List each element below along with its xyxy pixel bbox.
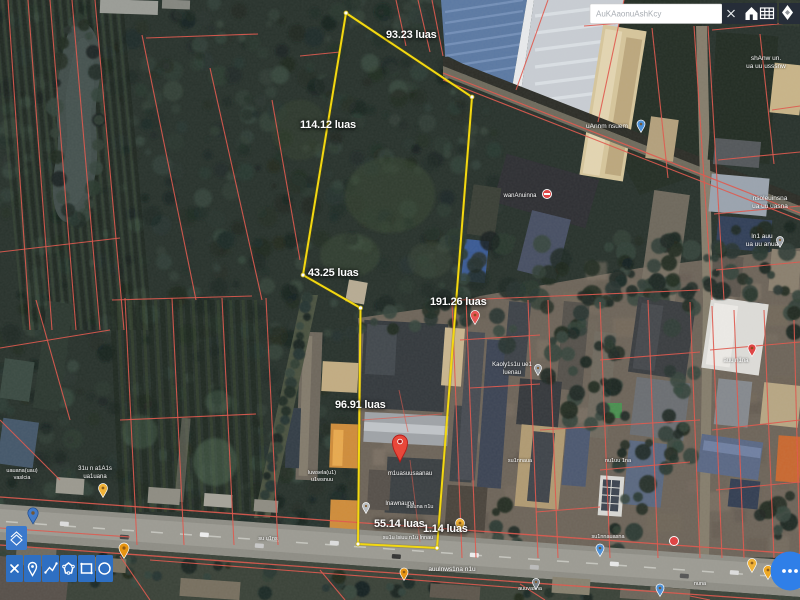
svg-text:AuKAaonuAshKcy: AuKAaonuAshKcy [596,10,661,19]
